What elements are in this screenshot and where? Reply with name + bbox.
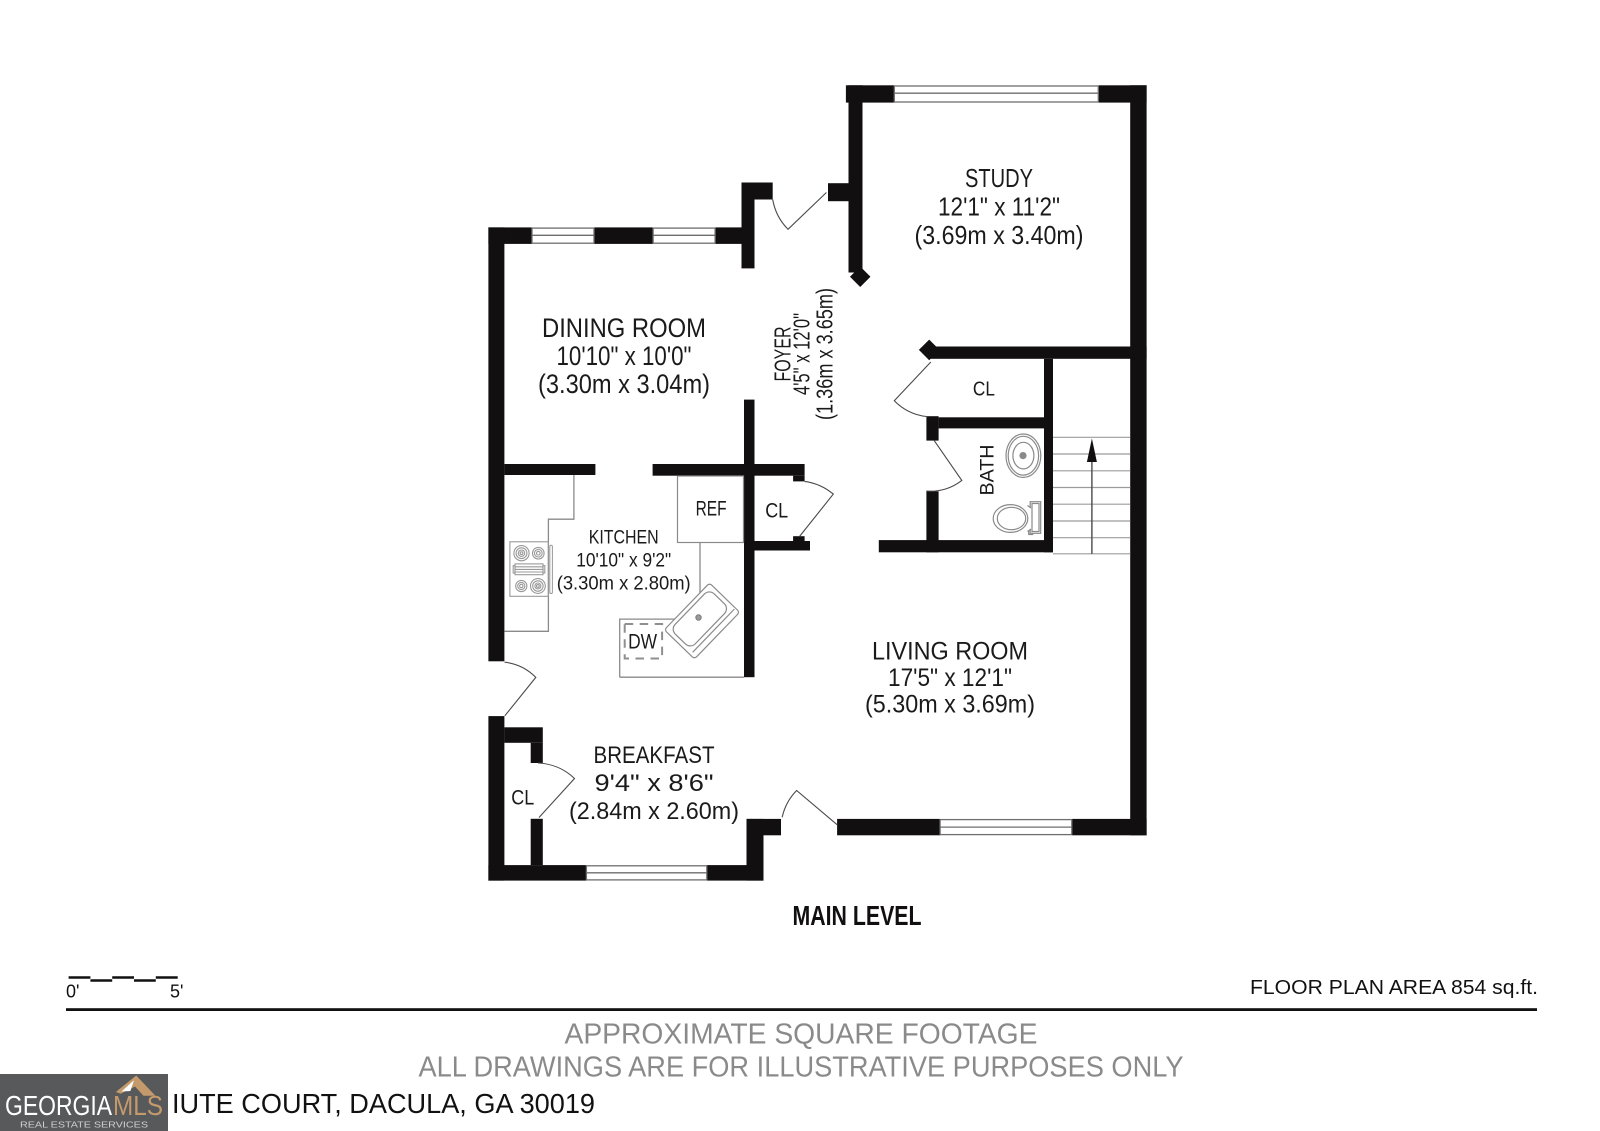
svg-text:(3.69m x 3.40m): (3.69m x 3.40m): [915, 220, 1084, 250]
svg-text:(3.30m x 3.04m): (3.30m x 3.04m): [538, 369, 710, 399]
svg-text:FLOOR PLAN AREA 854 sq.ft.: FLOOR PLAN AREA 854 sq.ft.: [1250, 976, 1538, 999]
svg-text:MLS: MLS: [113, 1090, 163, 1121]
svg-text:10'10" x 10'0": 10'10" x 10'0": [557, 341, 692, 371]
svg-text:CL: CL: [511, 787, 534, 810]
svg-text:APPROXIMATE SQUARE FOOTAGE: APPROXIMATE SQUARE FOOTAGE: [565, 1019, 1038, 1051]
svg-text:STUDY: STUDY: [965, 163, 1033, 193]
svg-text:DINING ROOM: DINING ROOM: [542, 313, 706, 343]
svg-text:ALL DRAWINGS ARE FOR ILLUSTRAT: ALL DRAWINGS ARE FOR ILLUSTRATIVE PURPOS…: [419, 1051, 1184, 1083]
svg-text:(2.84m x 2.60m): (2.84m x 2.60m): [569, 798, 739, 825]
svg-text:REF: REF: [696, 497, 727, 520]
svg-text:DW: DW: [628, 631, 657, 654]
svg-text:MAIN LEVEL: MAIN LEVEL: [793, 900, 922, 931]
svg-text:9'4" x 8'6": 9'4" x 8'6": [595, 770, 714, 797]
svg-text:IUTE COURT, DACULA, GA 30019: IUTE COURT, DACULA, GA 30019: [172, 1088, 595, 1119]
svg-text:CL: CL: [765, 500, 788, 523]
svg-text:CL: CL: [973, 379, 995, 401]
svg-text:KITCHEN: KITCHEN: [589, 528, 659, 549]
svg-text:(5.30m x 3.69m): (5.30m x 3.69m): [865, 691, 1035, 719]
svg-text:LIVING ROOM: LIVING ROOM: [872, 638, 1028, 666]
svg-text:BREAKFAST: BREAKFAST: [594, 742, 715, 769]
svg-text:0': 0': [66, 982, 79, 1002]
svg-text:(3.30m x 2.80m): (3.30m x 2.80m): [557, 573, 691, 594]
svg-text:(1.36m x 3.65m): (1.36m x 3.65m): [812, 288, 838, 420]
svg-text:REAL ESTATE SERVICES: REAL ESTATE SERVICES: [20, 1120, 148, 1130]
svg-text:5': 5': [170, 982, 183, 1002]
svg-text:12'1" x 11'2": 12'1" x 11'2": [938, 192, 1060, 222]
svg-text:17'5" x 12'1": 17'5" x 12'1": [888, 664, 1012, 692]
svg-text:GEORGIA: GEORGIA: [5, 1090, 112, 1121]
svg-text:BATH: BATH: [978, 445, 999, 496]
svg-text:10'10" x 9'2": 10'10" x 9'2": [576, 551, 671, 572]
